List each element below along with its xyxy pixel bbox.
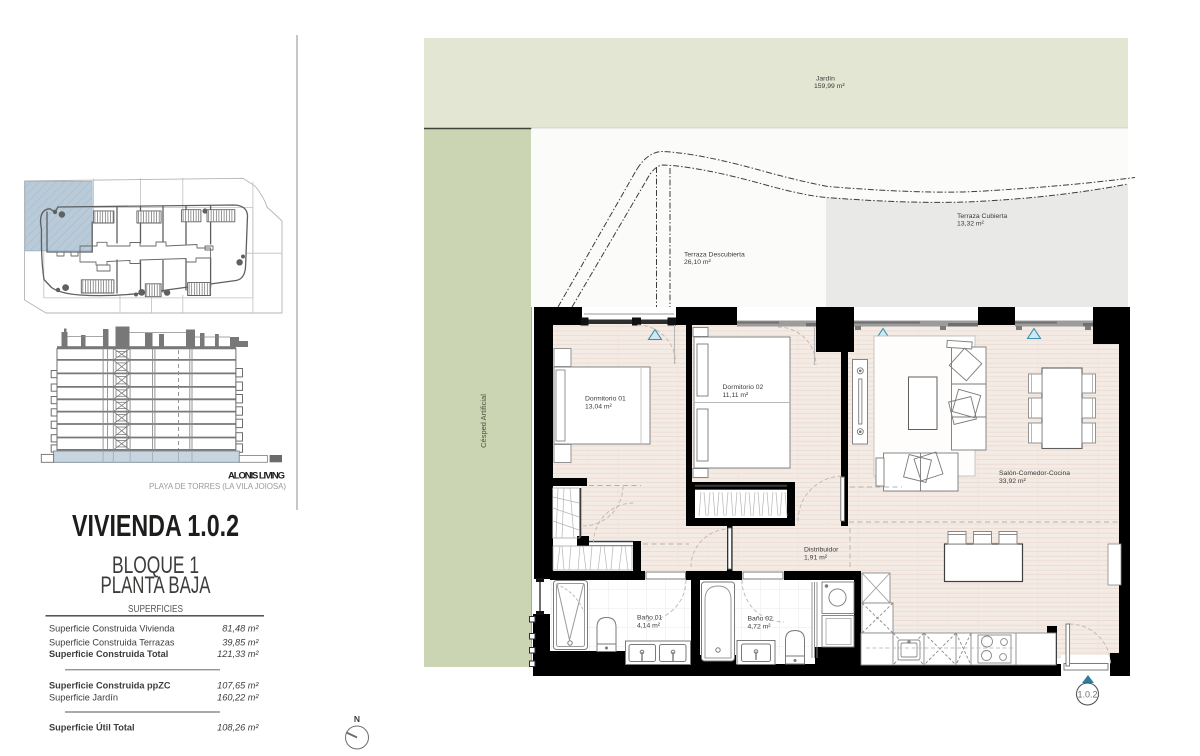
svg-text:1.0.2: 1.0.2 [1077, 690, 1097, 700]
svg-text:N: N [354, 714, 360, 724]
svg-text:Superficie Jardín: Superficie Jardín [49, 693, 118, 703]
svg-text:121,33 m²: 121,33 m² [217, 649, 259, 659]
svg-text:ALONIS LIVING: ALONIS LIVING [228, 471, 285, 482]
svg-text:1,91 m²: 1,91 m² [804, 555, 828, 562]
svg-text:PLAYA DE TORRES (LA VILA JOIOS: PLAYA DE TORRES (LA VILA JOIOSA) [149, 482, 286, 491]
svg-text:Terraza Cubierta: Terraza Cubierta [957, 213, 1007, 220]
svg-text:159,99 m²: 159,99 m² [814, 83, 845, 90]
svg-text:33,92 m²: 33,92 m² [999, 478, 1027, 485]
svg-text:Césped Artificial: Césped Artificial [479, 394, 488, 448]
svg-text:39,85 m²: 39,85 m² [222, 638, 259, 648]
svg-text:Superficie Construida Terrazas: Superficie Construida Terrazas [49, 638, 175, 648]
svg-text:Superficie Construida Total: Superficie Construida Total [49, 649, 168, 659]
svg-text:Superficie Construida Vivienda: Superficie Construida Vivienda [49, 624, 175, 634]
svg-text:Baño 02: Baño 02 [748, 616, 774, 623]
svg-text:13,04 m²: 13,04 m² [585, 404, 613, 411]
svg-text:160,22 m²: 160,22 m² [217, 693, 259, 703]
svg-text:VIVIENDA 1.0.2: VIVIENDA 1.0.2 [72, 508, 239, 543]
svg-text:Dormitorio 02: Dormitorio 02 [723, 384, 764, 391]
svg-text:Salón-Comedor-Cocina: Salón-Comedor-Cocina [999, 470, 1070, 477]
svg-text:Terraza Descubierta: Terraza Descubierta [684, 252, 745, 259]
svg-text:13,32 m²: 13,32 m² [957, 221, 985, 228]
svg-text:Superficie Construida ppZC: Superficie Construida ppZC [49, 680, 171, 690]
svg-text:SUPERFICIES: SUPERFICIES [128, 603, 183, 615]
svg-text:81,48 m²: 81,48 m² [222, 624, 259, 634]
svg-text:Superficie Útil Total: Superficie Útil Total [49, 722, 135, 733]
svg-text:Jardín: Jardín [816, 76, 835, 83]
svg-text:Distribuidor: Distribuidor [804, 547, 839, 554]
svg-text:11,11 m²: 11,11 m² [723, 392, 750, 399]
svg-text:26,10 m²: 26,10 m² [684, 259, 712, 266]
svg-text:4,72 m²: 4,72 m² [748, 624, 772, 631]
svg-text:Dormitorio 01: Dormitorio 01 [585, 396, 626, 403]
svg-text:107,65 m²: 107,65 m² [217, 680, 259, 690]
svg-text:PLANTA BAJA: PLANTA BAJA [101, 572, 211, 599]
svg-text:108,26 m²: 108,26 m² [217, 723, 259, 733]
svg-text:Baño 01: Baño 01 [637, 615, 663, 622]
svg-text:4,14 m²: 4,14 m² [637, 623, 661, 630]
